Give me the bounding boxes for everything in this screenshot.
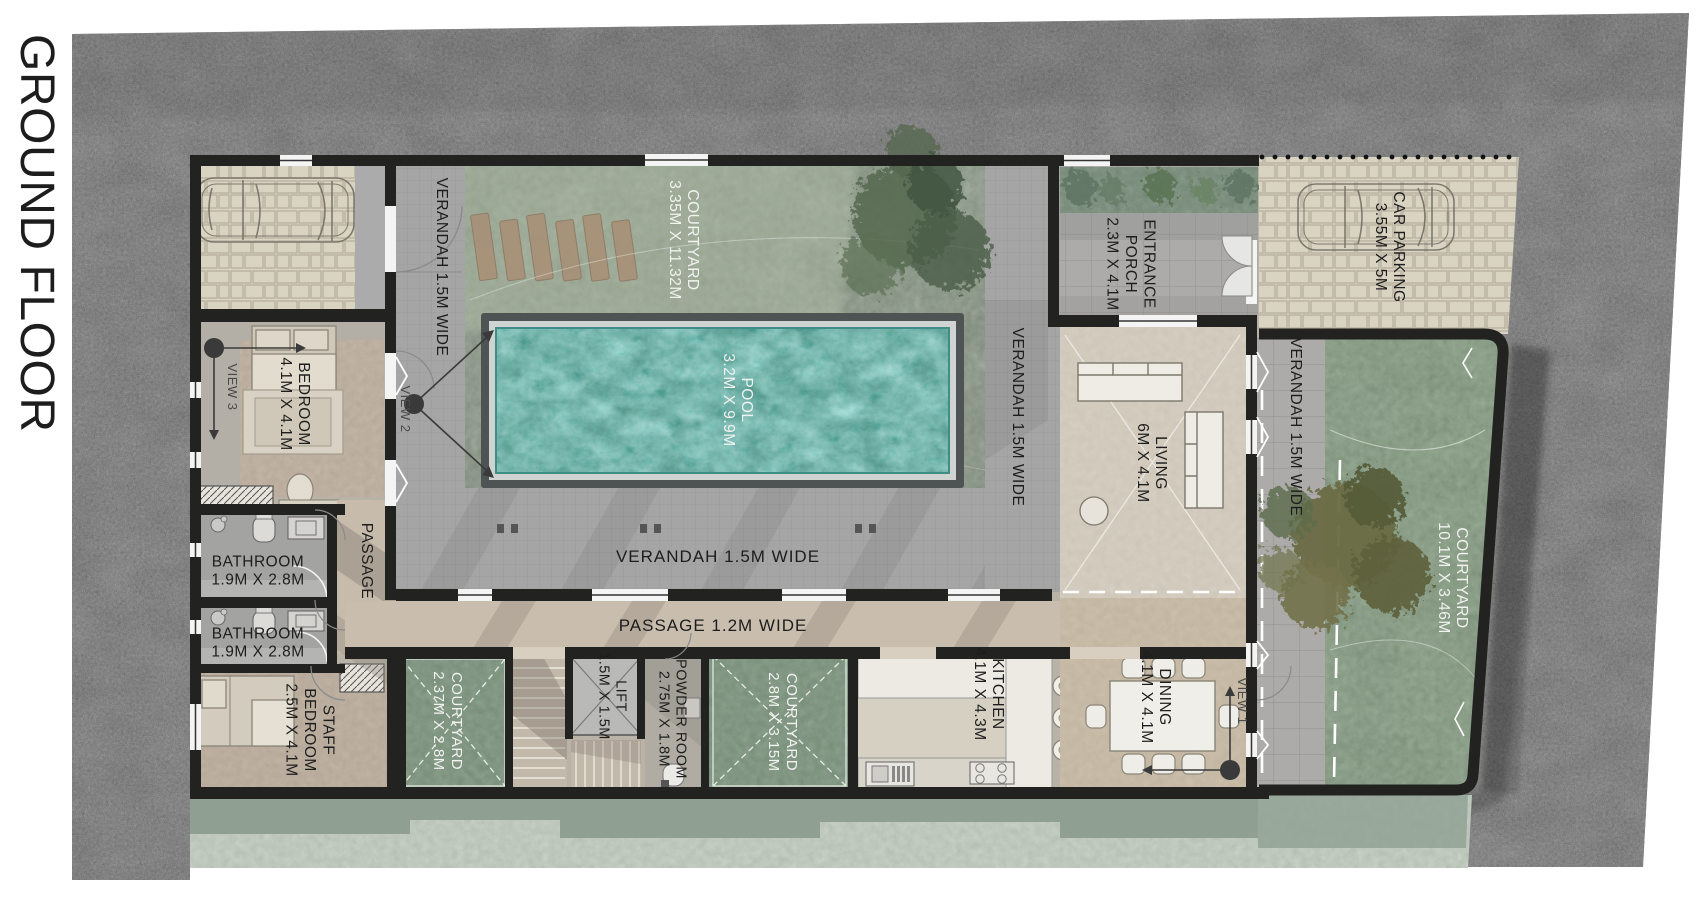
svg-text:PASSAGE 1.2M WIDE: PASSAGE 1.2M WIDE	[619, 616, 808, 635]
svg-text:VIEW 2: VIEW 2	[398, 385, 413, 432]
svg-text:BATHROOM: BATHROOM	[212, 625, 304, 642]
svg-text:GROUND FLOOR: GROUND FLOOR	[10, 34, 63, 434]
svg-text:POWDER ROOM: POWDER ROOM	[673, 659, 689, 779]
svg-text:BATHROOM: BATHROOM	[212, 553, 304, 570]
svg-text:VERANDAH 1.5M WIDE: VERANDAH 1.5M WIDE	[616, 547, 820, 566]
svg-text:PORCH: PORCH	[1122, 235, 1139, 293]
svg-text:1.9M X 2.8M: 1.9M X 2.8M	[211, 572, 304, 589]
svg-text:COURTYARD: COURTYARD	[684, 189, 701, 290]
svg-text:1.5M X 1.5M: 1.5M X 1.5M	[595, 652, 611, 740]
svg-text:STAFF: STAFF	[319, 705, 336, 755]
svg-text:VERANDAH 1.5M WIDE: VERANDAH 1.5M WIDE	[1287, 338, 1304, 517]
svg-text:BEDROOM: BEDROOM	[295, 362, 312, 446]
svg-text:COURTYARD: COURTYARD	[1453, 527, 1470, 628]
svg-text:COURTYARD: COURTYARD	[783, 673, 800, 771]
svg-text:3.2M X 9.9M: 3.2M X 9.9M	[720, 353, 737, 446]
svg-text:COURTYARD: COURTYARD	[448, 672, 465, 770]
svg-text:PASSAGE: PASSAGE	[358, 523, 375, 599]
svg-text:3.55M X 5M: 3.55M X 5M	[1372, 203, 1389, 292]
svg-text:LIFT: LIFT	[613, 680, 629, 712]
svg-text:LIVING: LIVING	[1152, 436, 1169, 490]
svg-text:VIEW 1: VIEW 1	[1235, 677, 1250, 724]
svg-text:BEDROOM: BEDROOM	[301, 688, 318, 772]
svg-text:2.75M X 1.8M: 2.75M X 1.8M	[655, 671, 671, 767]
svg-text:CAR PARKING: CAR PARKING	[1390, 191, 1407, 302]
svg-text:ENTRANCE: ENTRANCE	[1140, 219, 1157, 308]
svg-text:VERANDAH 1.5M WIDE: VERANDAH 1.5M WIDE	[433, 178, 450, 357]
svg-text:1.9M X 2.8M: 1.9M X 2.8M	[211, 644, 304, 661]
svg-text:2.8M X 3.15M: 2.8M X 3.15M	[765, 672, 782, 771]
svg-text:2.3M X 4.1M: 2.3M X 4.1M	[1104, 217, 1121, 310]
svg-text:POOL: POOL	[738, 377, 755, 422]
svg-text:4.1M X 4.1M: 4.1M X 4.1M	[277, 357, 294, 450]
svg-text:2.37M X 2.8M: 2.37M X 2.8M	[430, 671, 447, 770]
svg-text:6M X 4.1M: 6M X 4.1M	[1134, 423, 1151, 502]
svg-text:VIEW 3: VIEW 3	[225, 363, 240, 410]
svg-text:3.35M X 11.32M: 3.35M X 11.32M	[666, 180, 683, 300]
svg-text:VERANDAH 1.5M WIDE: VERANDAH 1.5M WIDE	[1009, 328, 1026, 507]
svg-text:DINING: DINING	[1156, 668, 1173, 725]
svg-text:4.1M X 4.1M: 4.1M X 4.1M	[1138, 650, 1155, 743]
svg-text:KITCHEN: KITCHEN	[989, 658, 1006, 730]
svg-text:2.5M X 4.1M: 2.5M X 4.1M	[283, 683, 300, 776]
svg-text:4.1M X 4.3M: 4.1M X 4.3M	[971, 647, 988, 740]
svg-text:10.1M X 3.46M: 10.1M X 3.46M	[1435, 522, 1452, 634]
